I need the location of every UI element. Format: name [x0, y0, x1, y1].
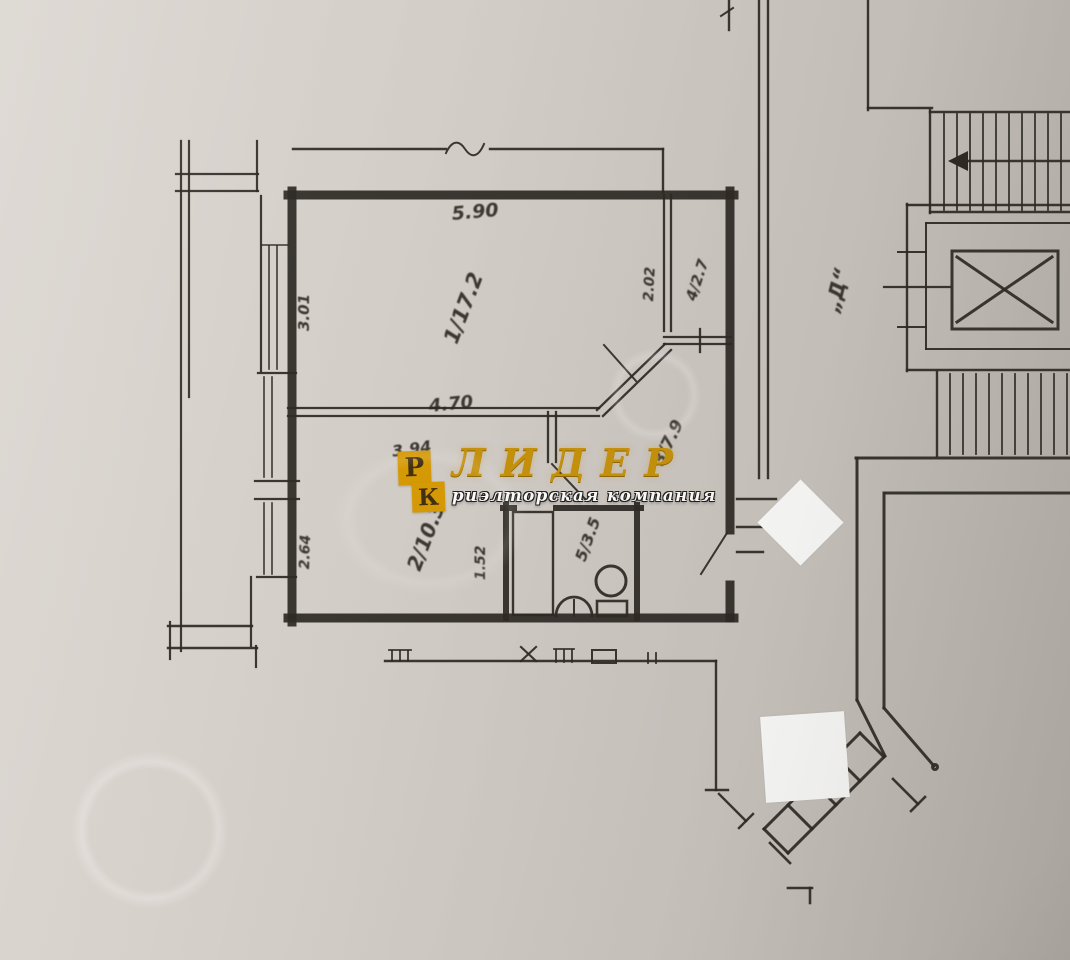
stairs-arrow-icon: [948, 151, 968, 171]
stairwell-mid: [937, 372, 1067, 456]
watermark-brand: ЛИДЕР: [452, 444, 688, 482]
dim-room2-left: 2.64: [298, 534, 313, 569]
bathroom-door-leaf: [513, 512, 553, 615]
elevator-block: [884, 204, 1070, 371]
watermark-logo-letter: Р: [404, 453, 425, 484]
room-partitions: [288, 195, 731, 574]
redaction-square: [760, 711, 850, 803]
break-mark-icon: [446, 143, 484, 156]
watermark-tagline: риэлторская компания: [452, 486, 717, 505]
dim-room1-left: 3.01: [297, 294, 312, 331]
watermark-logo-tile-k: К: [411, 481, 445, 512]
upper-boundary: [293, 143, 663, 192]
left-loggia: [168, 141, 299, 667]
watermark-logo-tile-r: Р: [397, 450, 431, 485]
stairwell-top: [868, 1, 1070, 213]
floorplan-photo: 5.90 3.01 2.02 1/17.2 4.70 4/2.7 3.94 2/…: [0, 0, 1070, 960]
apartment-walls: [288, 191, 734, 622]
dim-bathroom-left: 1.52: [474, 545, 488, 580]
door-leaf: [604, 345, 636, 381]
entry-door-leaf: [701, 533, 727, 574]
watermark-logo-letter: К: [418, 483, 440, 511]
dim-room1-bottom: 4.70: [428, 393, 474, 416]
toilet-icon: [596, 566, 626, 596]
dim-room4-left: 2.02: [642, 267, 658, 302]
dim-room1-top: 5.90: [451, 201, 499, 224]
bathroom: [503, 505, 641, 618]
